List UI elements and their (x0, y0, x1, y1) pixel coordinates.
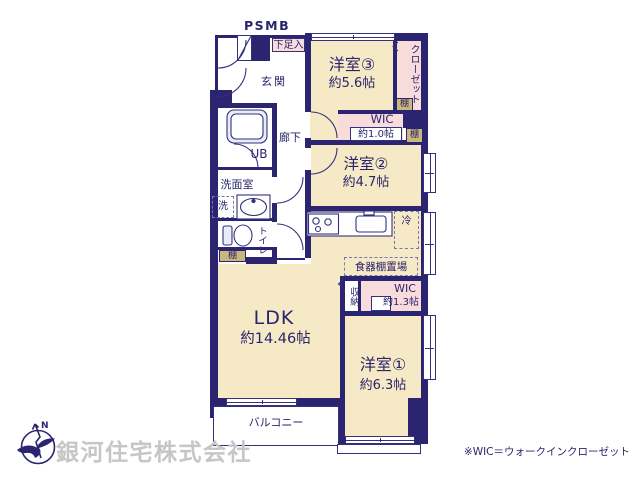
psmb-label: PSMB (244, 19, 288, 33)
bathtub-inner (231, 114, 263, 139)
wic-lower-name: WIC (388, 283, 422, 296)
toilet-bowl-icon (234, 225, 252, 246)
closet-label: クローゼット (400, 42, 418, 106)
wic-lower-area: 約1.3帖 (380, 297, 422, 309)
floorplan-canvas: 下足入 棚 棚 棚 約1.0帖 洗 冷 食器棚置場 (0, 0, 640, 480)
stove-burner (313, 218, 319, 224)
washroom-label: 洗面室 (214, 179, 260, 192)
room-western3-name: 洋室③ (310, 56, 394, 74)
stove-icon (309, 214, 339, 234)
room-western1-name: 洋室① (345, 356, 421, 374)
ldk-area: 約14.46帖 (233, 331, 318, 348)
room-western1-area: 約6.3帖 (345, 379, 421, 394)
toilet-door-arc (277, 224, 303, 250)
sink-icon (356, 216, 386, 232)
basin-tap-icon (252, 199, 255, 202)
unit-bath-label: UB (246, 148, 272, 162)
stove-burner (325, 219, 331, 225)
room-western2-area: 約4.7帖 (311, 176, 421, 191)
toilet-label: トイレ (253, 223, 266, 257)
western3-door-arc (311, 112, 337, 138)
storage-door-mark (339, 279, 345, 289)
ldk-name: LDK (238, 308, 310, 330)
storage-label: 収納 (345, 283, 358, 310)
room-western3-area: 約5.6帖 (310, 77, 394, 92)
hallway-label: 廊下 (276, 132, 304, 145)
stove-burner (316, 227, 321, 232)
sink-tap-icon (364, 211, 374, 215)
company-name: 銀河住宅株式会社 (56, 440, 266, 466)
entrance-door-arc (217, 68, 246, 97)
room-western2-name: 洋室② (311, 156, 421, 174)
entrance-label: 玄関 (252, 76, 296, 89)
wic-upper-name: WIC (363, 113, 401, 126)
balcony-label: バルコニー (240, 417, 312, 430)
washroom-door-arc (277, 177, 303, 203)
north-label: N (41, 421, 49, 431)
wic-note: ※WIC＝ウォークインクローゼット (452, 446, 630, 458)
closet-door-mark (393, 42, 398, 51)
entrance-door-arc (218, 40, 246, 68)
toilet-tank-icon (223, 226, 232, 245)
